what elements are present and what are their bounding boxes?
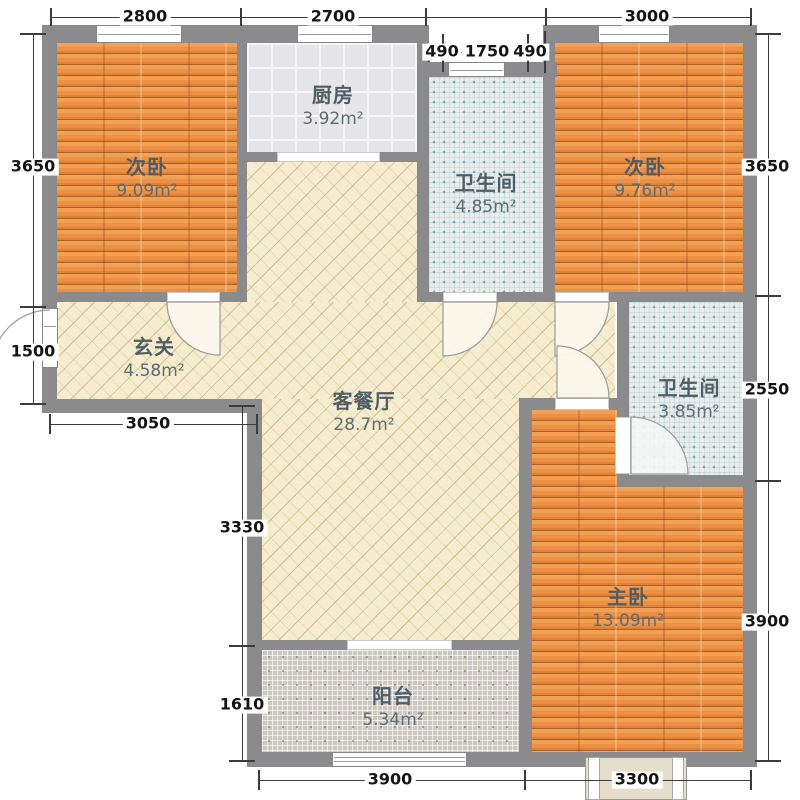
bedroom1-door-threshold [167, 292, 220, 302]
room-area: 9.09m² [116, 181, 177, 201]
master-door-threshold [555, 398, 609, 410]
dim-sub-1750: 1750 [462, 44, 513, 61]
bay-window-frame-left [588, 757, 600, 800]
wall-entry-bottom [42, 399, 247, 413]
room-area: 28.7m² [333, 415, 396, 435]
room-label-living-dining: 客餐厅 28.7m² [333, 385, 396, 435]
bedroom2-door-threshold [555, 292, 609, 302]
room-label-entry-hall: 玄关 4.58m² [123, 331, 184, 381]
room-label-bedroom-top-left: 次卧 9.09m² [116, 151, 177, 201]
wall-kitchen-right [417, 43, 429, 302]
room-name: 次卧 [614, 151, 675, 180]
balcony-sliding-door [347, 640, 452, 650]
kitchen-opening [277, 152, 380, 162]
dim-left-3650: 3650 [8, 159, 59, 176]
dim-left-1500: 1500 [8, 344, 59, 361]
dim-right-3900: 3900 [742, 614, 793, 631]
room-area: 4.58m² [123, 361, 184, 381]
room-name: 厨房 [302, 79, 363, 108]
room-label-bath-right: 卫生间 3.85m² [658, 372, 721, 422]
room-area: 9.76m² [614, 181, 675, 201]
room-name: 卫生间 [455, 167, 518, 196]
room-label-kitchen: 厨房 3.92m² [302, 79, 363, 129]
room-area: 3.85m² [658, 402, 721, 422]
wall-master-left [519, 398, 532, 767]
room-label-master-bedroom: 主卧 13.09m² [592, 581, 664, 631]
room-label-balcony: 阳台 5.34m² [362, 680, 423, 730]
dim-top-3000: 3000 [622, 9, 673, 26]
dim-top-2700: 2700 [308, 9, 359, 26]
room-area: 3.92m² [302, 109, 363, 129]
window-kitchen-top [297, 25, 373, 43]
dim-right-2550: 2550 [742, 382, 793, 399]
room-name: 玄关 [123, 331, 184, 360]
room-label-bedroom-top-right: 次卧 9.76m² [614, 151, 675, 201]
room-name: 客餐厅 [333, 385, 396, 414]
window-bedroom1-top [96, 25, 182, 43]
room-area: 13.09m² [592, 611, 664, 631]
window-bath-top [448, 62, 505, 77]
window-bedroom2-top [598, 25, 670, 43]
window-balcony-bottom [332, 752, 467, 767]
room-area: 4.85m² [455, 197, 518, 217]
living-floor-upper [247, 162, 417, 302]
dim-sub-490a: 490 [422, 44, 461, 61]
wall-bedroom1-right [237, 43, 247, 302]
dim-sub-490b: 490 [510, 44, 549, 61]
living-floor-main [262, 399, 519, 640]
room-area: 5.34m² [362, 710, 423, 730]
room-name: 次卧 [116, 151, 177, 180]
dim-inner-3330: 3330 [217, 520, 268, 537]
dim-line-bottom [258, 780, 750, 781]
bath2-door-threshold [615, 417, 631, 474]
dim-right-3650: 3650 [742, 159, 793, 176]
room-name: 阳台 [362, 680, 423, 709]
wall-bath2-bottom [617, 475, 743, 487]
dim-inner-1610: 1610 [217, 697, 268, 714]
bay-window-frame-right [672, 757, 684, 800]
dim-bottom-3300: 3300 [612, 772, 663, 789]
dim-inner-3050: 3050 [123, 416, 174, 433]
dim-top-2800: 2800 [120, 9, 171, 26]
dim-bottom-3900: 3900 [365, 772, 416, 789]
bath1-door-threshold [443, 292, 497, 302]
room-name: 主卧 [592, 581, 664, 610]
room-name: 卫生间 [658, 372, 721, 401]
room-label-bath-top: 卫生间 4.85m² [455, 167, 518, 217]
floor-plan: 2800 2700 3000 490 1750 490 3650 1500 30… [0, 0, 800, 800]
